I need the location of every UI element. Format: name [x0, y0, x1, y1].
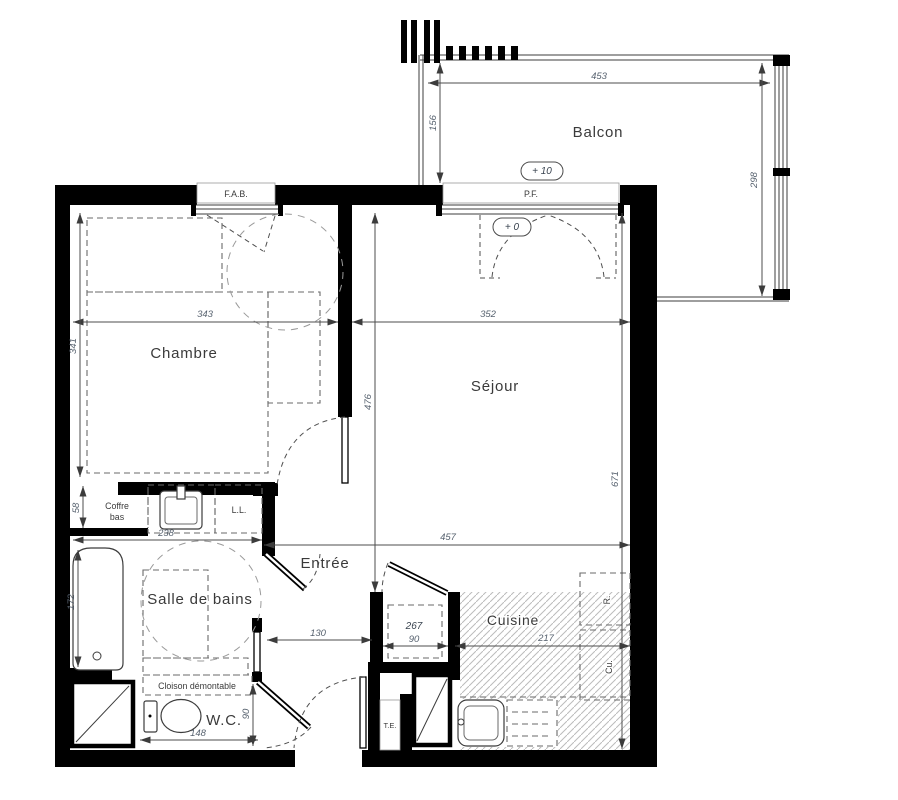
sdb-douche-outline: [143, 570, 208, 658]
wall-bottom-2: [362, 750, 657, 767]
dim-balcon-hauteur: 298: [749, 171, 760, 189]
wall-top-1: [55, 185, 197, 205]
door-sdb-leaf: [266, 554, 305, 589]
wall-te-est: [400, 694, 412, 750]
door-sejour-swing: [382, 563, 388, 592]
wall-te-ouest: [368, 673, 380, 750]
dim-chambre-profondeur: 341: [68, 338, 79, 354]
door-wc-swing: [264, 727, 311, 748]
door-chambre-leaf: [342, 417, 348, 483]
chambre-turning-circle: [227, 214, 343, 330]
balcony-railing: [773, 55, 790, 300]
drainer-backing: [506, 699, 558, 747]
door-wc-leaf: [258, 682, 309, 727]
dim-couloir: 130: [310, 628, 327, 639]
chambre-lit-outline: [87, 292, 268, 473]
chambre-meuble-outline: [268, 292, 320, 403]
dim-totale-profondeur: 671: [610, 471, 621, 487]
room-label-chambre: Chambre: [150, 345, 217, 362]
wall-left: [55, 185, 70, 767]
sdb-zone-outline: [143, 658, 248, 675]
kitchen-sink: [458, 700, 504, 746]
wall-coffre-bas: [70, 528, 148, 536]
dim-cuisine-largeur: 217: [537, 633, 555, 644]
wall-placard-ouest: [370, 592, 383, 662]
coffre-bas-label-1: Coffre: [105, 501, 129, 511]
window-fab-label: F.A.B.: [224, 189, 247, 199]
door-chambre-swing: [277, 417, 345, 485]
room-label-cuisine: Cuisine: [487, 612, 539, 628]
room-label-balcon: Balcon: [573, 124, 624, 141]
door-sdb-couloir-leaf: [254, 632, 260, 672]
dim-sejour-profondeur: 476: [363, 393, 374, 410]
room-label-sdb: Salle de bains: [147, 591, 252, 608]
room-label-sejour: Séjour: [471, 378, 519, 395]
placard-label: 267: [405, 621, 423, 632]
dim-baignoire: 172: [66, 593, 77, 610]
wall-te-haut: [368, 662, 460, 673]
floor-plan-page: + 10 Balcon F.A.B.: [0, 0, 898, 800]
room-label-entree: Entrée: [301, 555, 350, 572]
dim-wc-profondeur: 90: [241, 708, 252, 719]
dim-balcon-largeur: 453: [591, 71, 608, 82]
door-sejour-leaf: [389, 564, 447, 593]
dimensions: 453 156 298 343 352 341 476 671 457 58 2…: [66, 63, 770, 749]
lave-linge-label: L.L.: [232, 505, 247, 515]
dim-wc-largeur: 148: [190, 728, 207, 739]
dim-placard-largeur: 90: [409, 634, 420, 645]
dim-totale-largeur: 457: [440, 532, 457, 543]
chambre-armoire-outline: [87, 218, 222, 292]
dim-chambre-largeur: 343: [197, 309, 214, 320]
kitchen-area: R. Cu. 267 T.E.: [380, 573, 630, 750]
fridge-label: R.: [602, 596, 612, 605]
stove-label: Cu.: [604, 660, 614, 674]
cloison-demontable-label: Cloison démontable: [158, 681, 236, 691]
balcony: + 10 Balcon: [401, 20, 790, 301]
level-sejour-label: + 0: [505, 222, 520, 233]
chambre-furniture: [87, 214, 343, 473]
dim-sdb-largeur: 238: [157, 528, 175, 539]
te-label: T.E.: [384, 721, 397, 730]
dim-coffre: 58: [71, 502, 82, 513]
door-entree-leaf: [360, 677, 366, 748]
wall-top-2: [275, 185, 443, 205]
dim-sejour-largeur: 352: [480, 309, 497, 320]
dim-balcon-profondeur: 156: [428, 114, 439, 131]
coffre-bas-label-2: bas: [110, 512, 125, 522]
sdb-wc-fixtures: L.L. Coffre bas Cloison démontable: [72, 485, 262, 746]
wall-right: [630, 185, 657, 767]
door-entree-swing: [294, 677, 365, 748]
wall-bottom-1: [55, 750, 295, 767]
level-balcony-label: + 10: [532, 166, 552, 177]
wall-chambre-sejour: [338, 205, 352, 417]
floor-plan-drawing: + 10 Balcon F.A.B.: [0, 0, 898, 800]
room-label-wc: W.C.: [206, 712, 242, 729]
washbasin-faucet: [177, 486, 185, 499]
window-pf-label: P.F.: [524, 189, 538, 199]
